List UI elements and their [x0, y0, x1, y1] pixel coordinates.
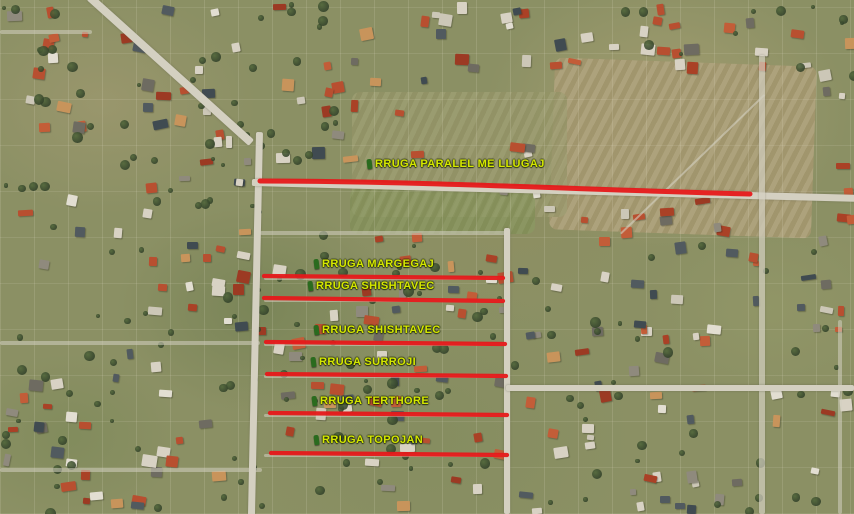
tree: [124, 318, 130, 324]
tree: [1, 439, 11, 449]
house-roof: [656, 3, 665, 15]
house-roof: [609, 44, 619, 51]
house-roof: [185, 282, 193, 292]
tree: [38, 66, 44, 72]
house-roof: [374, 236, 383, 243]
house-roof: [233, 284, 244, 295]
tree: [614, 392, 623, 401]
house-roof: [142, 208, 152, 218]
tree: [45, 508, 56, 514]
tree: [267, 129, 275, 137]
tree: [168, 188, 173, 193]
house-roof: [658, 404, 667, 412]
house-roof: [700, 336, 710, 347]
tree: [839, 15, 847, 23]
house-roof: [509, 142, 525, 153]
road-segment: [264, 375, 508, 378]
tree: [490, 333, 496, 339]
tree: [109, 249, 115, 255]
street-name: RRUGA SURROJI: [319, 356, 416, 368]
house-roof: [634, 320, 647, 328]
house-roof: [39, 123, 50, 132]
house-roof: [377, 351, 387, 360]
tree-marker-icon: [313, 259, 319, 270]
house-roof: [79, 422, 92, 430]
tree: [110, 419, 114, 423]
tree: [397, 265, 401, 269]
house-roof: [179, 176, 190, 182]
tree: [583, 497, 587, 501]
tree: [409, 466, 413, 470]
house-roof: [400, 443, 415, 452]
street-label: RRUGA SURROJI: [311, 356, 416, 368]
house-roof: [235, 322, 248, 332]
house-roof: [174, 114, 187, 127]
house-roof: [436, 29, 446, 39]
satellite-map: RRUGA PARALEL ME LLUGAJRRUGA MARGEGAJRRU…: [0, 0, 854, 514]
open-field: [549, 57, 817, 238]
house-roof: [157, 284, 167, 292]
house-roof: [400, 255, 412, 265]
house-roof: [311, 382, 324, 390]
house-roof: [272, 265, 287, 278]
house-roof: [145, 182, 157, 193]
house-roof: [838, 92, 845, 98]
house-roof: [65, 411, 77, 422]
house-roof: [231, 42, 240, 53]
house-roof: [650, 290, 658, 299]
house-roof: [3, 454, 11, 467]
tree: [472, 312, 482, 322]
house-roof: [801, 274, 816, 281]
house-roof: [585, 441, 596, 449]
tree: [338, 268, 347, 277]
road-segment: [838, 320, 842, 514]
tree: [2, 431, 10, 439]
house-roof: [447, 260, 454, 272]
house-roof: [351, 100, 359, 112]
house-roof: [188, 303, 197, 311]
tree-marker-icon: [307, 281, 313, 292]
tree: [94, 401, 101, 408]
house-roof: [706, 324, 721, 335]
house-roof: [599, 237, 610, 246]
house-roof: [687, 62, 699, 75]
house-roof: [725, 249, 737, 258]
tree: [258, 15, 264, 21]
house-roof: [130, 501, 143, 510]
house-roof: [581, 217, 588, 224]
house-roof: [518, 268, 528, 274]
house-roof: [50, 446, 64, 458]
tree: [238, 479, 243, 484]
tree: [618, 321, 623, 326]
tree: [635, 336, 641, 342]
tree: [594, 328, 601, 335]
house-roof: [686, 414, 695, 424]
house-roof: [686, 470, 697, 483]
tree: [315, 486, 325, 496]
tree: [583, 417, 588, 422]
house-roof: [215, 245, 225, 252]
tree: [590, 317, 601, 328]
house-roof: [818, 69, 831, 82]
house-roof: [414, 366, 427, 373]
road-right-vertical: [759, 55, 765, 514]
house-roof: [90, 492, 104, 502]
house-roof: [362, 287, 372, 297]
road-left-vertical: [248, 132, 263, 514]
tree: [592, 469, 602, 479]
house-roof: [331, 81, 344, 94]
house-roof: [187, 242, 198, 249]
tree: [338, 400, 347, 409]
tree: [287, 8, 296, 17]
house-roof: [148, 307, 162, 317]
tree: [776, 6, 787, 17]
house-roof: [381, 484, 395, 491]
road-segment: [264, 454, 508, 457]
house-roof: [660, 496, 670, 503]
house-roof: [324, 61, 332, 70]
house-roof: [473, 484, 482, 494]
tree: [689, 429, 697, 437]
house-roof: [329, 310, 337, 321]
tree: [259, 503, 265, 509]
house-roof: [224, 318, 232, 325]
tree: [120, 120, 130, 130]
house-roof: [151, 361, 162, 371]
tree: [54, 484, 60, 490]
house-roof: [421, 16, 430, 28]
tree: [849, 71, 854, 81]
tree: [201, 199, 211, 209]
tree: [96, 314, 100, 318]
road-segment: [0, 468, 262, 472]
tree: [648, 254, 655, 261]
house-roof: [112, 373, 120, 382]
road-segment: [260, 231, 508, 235]
tree: [284, 397, 289, 402]
house-roof: [838, 305, 845, 315]
tree: [38, 46, 48, 56]
tree: [320, 252, 329, 261]
house-roof: [28, 380, 43, 393]
tree: [417, 291, 421, 295]
tree: [412, 244, 417, 249]
house-roof: [532, 507, 542, 514]
house-roof: [5, 408, 18, 417]
house-roof: [521, 55, 531, 67]
house-roof: [368, 396, 382, 408]
house-roof: [149, 257, 157, 266]
tree: [135, 446, 141, 452]
house-roof: [203, 254, 211, 263]
house-roof: [176, 437, 184, 445]
tree: [312, 398, 318, 404]
house-roof: [797, 304, 806, 311]
tree: [151, 157, 158, 164]
tree: [294, 322, 299, 327]
house-roof: [373, 329, 384, 341]
tree: [40, 182, 49, 191]
tree: [221, 494, 227, 500]
house-roof: [330, 383, 345, 396]
house-roof: [821, 279, 831, 289]
tree: [791, 347, 800, 356]
house-roof: [582, 424, 594, 433]
tree: [11, 5, 20, 14]
tree: [4, 183, 8, 187]
house-roof: [56, 100, 72, 113]
house-roof: [686, 505, 695, 514]
house-roof: [315, 324, 326, 334]
house-roof: [43, 404, 53, 410]
tree: [733, 31, 738, 36]
tree: [221, 163, 225, 167]
tree: [430, 263, 440, 273]
tree: [66, 390, 74, 398]
house-roof: [467, 64, 478, 73]
tree: [364, 379, 368, 383]
tree: [153, 197, 162, 206]
house-roof: [312, 146, 326, 158]
house-roof: [554, 446, 569, 459]
house-roof: [156, 92, 171, 101]
house-roof: [732, 479, 743, 486]
house-roof: [281, 79, 294, 91]
tree: [387, 378, 398, 389]
house-roof: [391, 396, 401, 407]
tree: [478, 270, 483, 275]
house-roof: [525, 397, 535, 409]
house-roof: [684, 43, 699, 54]
house-roof: [836, 162, 850, 168]
house-roof: [420, 76, 427, 84]
tree: [2, 6, 6, 10]
tree: [16, 419, 20, 423]
tree: [545, 306, 551, 312]
house-roof: [819, 306, 833, 315]
tree: [168, 329, 174, 335]
tree: [258, 305, 268, 315]
tree: [18, 185, 25, 192]
house-roof: [823, 86, 831, 95]
house-roof: [813, 323, 820, 331]
house-roof: [61, 481, 77, 492]
house-roof: [141, 454, 157, 468]
tree: [289, 2, 294, 7]
house-roof: [34, 421, 45, 432]
tree: [76, 89, 85, 98]
house-roof: [547, 351, 561, 362]
house-roof: [621, 209, 629, 219]
tree: [679, 450, 685, 456]
tree: [635, 459, 640, 464]
house-roof: [39, 259, 50, 269]
house-roof: [75, 227, 85, 237]
road-mid-vertical: [504, 228, 510, 514]
tree: [300, 356, 304, 360]
house-roof: [675, 58, 686, 70]
tree: [343, 459, 351, 467]
house-roof: [745, 17, 754, 27]
house-roof: [550, 61, 563, 69]
tree: [796, 63, 805, 72]
house-roof: [365, 459, 379, 467]
tree: [130, 154, 137, 161]
house-roof: [525, 331, 535, 339]
house-roof: [238, 229, 250, 236]
tree: [211, 157, 215, 161]
tree: [84, 351, 94, 361]
tree: [226, 381, 235, 390]
house-roof: [847, 215, 854, 225]
house-roof: [411, 151, 425, 159]
road-segment: [264, 343, 508, 346]
house-roof: [600, 272, 610, 283]
tree: [143, 311, 148, 316]
street-name: RRUGA SHISHTAVEC: [316, 280, 435, 292]
house-roof: [143, 103, 153, 113]
tree: [811, 5, 815, 9]
tree: [566, 395, 574, 403]
house-roof: [152, 118, 168, 130]
house-roof: [195, 66, 203, 74]
tree: [293, 57, 301, 65]
tree: [448, 462, 453, 467]
house-roof: [324, 398, 337, 408]
house-roof: [342, 155, 357, 163]
house-roof: [670, 294, 683, 304]
house-roof: [273, 4, 286, 10]
house-roof: [653, 16, 663, 25]
house-roof: [18, 210, 33, 216]
tree: [547, 331, 555, 339]
tree: [232, 314, 237, 319]
tree: [679, 52, 684, 57]
tree: [532, 277, 540, 285]
tree: [377, 479, 383, 485]
tree: [639, 7, 649, 17]
house-roof: [114, 228, 122, 239]
tree: [511, 361, 519, 369]
tree: [231, 100, 237, 106]
tree: [67, 62, 77, 72]
house-roof: [486, 254, 498, 263]
house-roof: [820, 408, 835, 416]
tree: [621, 7, 631, 17]
house-roof: [20, 392, 29, 403]
house-roof: [419, 437, 430, 443]
house-roof: [161, 5, 174, 16]
tree-marker-icon: [313, 435, 319, 446]
tree: [72, 132, 83, 143]
tree: [318, 16, 328, 26]
house-roof: [818, 235, 828, 246]
house-roof: [409, 435, 419, 444]
tree: [211, 52, 221, 62]
house-roof: [473, 433, 483, 444]
tree: [637, 441, 647, 451]
house-roof: [675, 241, 687, 254]
tree: [110, 359, 117, 366]
house-roof: [331, 130, 344, 139]
tree: [139, 247, 145, 253]
house-roof: [810, 468, 819, 475]
house-roof: [693, 332, 700, 339]
tree: [435, 391, 444, 400]
tree: [577, 402, 584, 409]
tree: [199, 57, 206, 64]
house-roof: [587, 435, 595, 441]
road-segment: [264, 414, 508, 417]
tree: [87, 123, 94, 130]
house-roof: [285, 427, 294, 438]
house-roof: [639, 25, 648, 37]
house-roof: [675, 502, 686, 508]
house-roof: [48, 33, 59, 43]
house-roof: [446, 304, 454, 311]
house-roof: [297, 97, 306, 105]
house-roof: [668, 22, 680, 30]
house-roof: [237, 250, 251, 260]
tree: [50, 9, 60, 19]
house-roof: [181, 254, 190, 262]
tree: [205, 139, 215, 149]
house-roof: [663, 335, 671, 345]
house-roof: [438, 13, 453, 27]
house-roof: [457, 2, 467, 14]
street-label: RRUGA MARGEGAJ: [314, 258, 434, 270]
tree: [714, 501, 721, 508]
house-roof: [450, 476, 461, 484]
house-roof: [548, 429, 560, 440]
house-roof: [165, 455, 178, 467]
house-roof: [199, 420, 212, 429]
house-roof: [790, 30, 804, 39]
road-segment: [0, 341, 260, 345]
house-roof: [110, 499, 123, 509]
tree-marker-icon: [310, 357, 316, 368]
house-roof: [637, 501, 645, 511]
tree: [50, 224, 57, 231]
tree: [120, 160, 130, 170]
road-segment: [264, 299, 508, 302]
house-roof: [351, 58, 358, 66]
tree: [110, 390, 115, 395]
tree: [548, 500, 553, 505]
tree: [58, 436, 66, 444]
house-roof: [628, 366, 638, 377]
tree: [249, 64, 257, 72]
tree: [329, 106, 339, 116]
tree: [223, 292, 234, 303]
house-roof: [458, 308, 467, 318]
house-roof: [364, 315, 380, 326]
house-roof: [657, 46, 670, 55]
road-diagonal-northwest: [87, 0, 254, 146]
tree: [751, 9, 756, 14]
road-segment: [0, 30, 92, 34]
house-roof: [159, 390, 172, 398]
road-segment: [264, 277, 508, 280]
road-lower-horizontal: [506, 385, 854, 391]
tree: [41, 372, 51, 382]
tree: [232, 456, 237, 461]
tree: [811, 497, 820, 506]
tree: [792, 493, 801, 502]
